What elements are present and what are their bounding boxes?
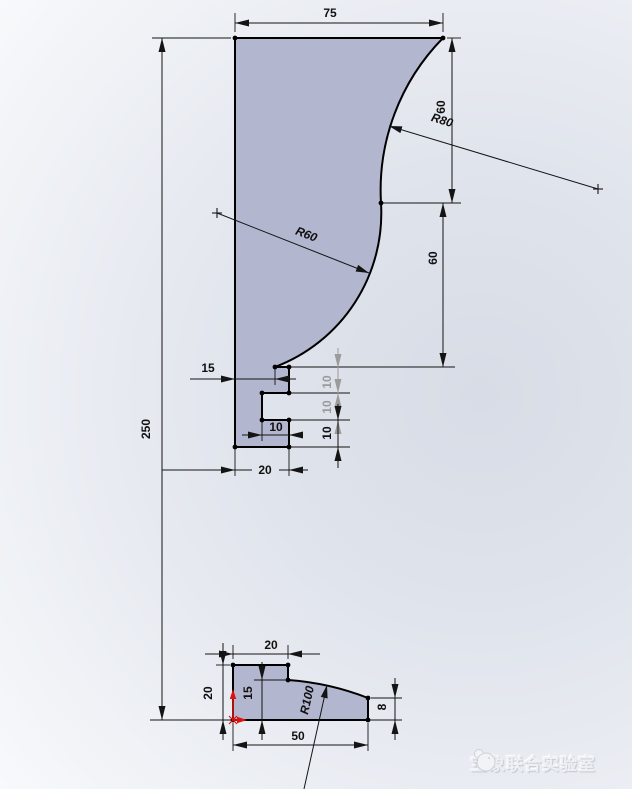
r80-center-point[interactable] — [593, 184, 603, 194]
dim-50-text[interactable]: 50 — [291, 729, 305, 743]
dim-r80[interactable]: R80 — [389, 110, 603, 194]
dim-250-text[interactable]: 250 — [139, 419, 153, 439]
dim-width-75[interactable]: 75 — [235, 6, 443, 32]
dim-75-text[interactable]: 75 — [323, 6, 337, 20]
dim-20-left-text[interactable]: 20 — [201, 686, 215, 700]
elephant-logo-icon — [470, 744, 498, 776]
dim-60-lower-text[interactable]: 60 — [426, 251, 440, 265]
dim-8-right-lower[interactable]: 8 — [370, 678, 402, 740]
dim-15-mid-text[interactable]: 15 — [241, 686, 255, 700]
watermark: 宝象联合实验室 — [470, 744, 630, 780]
sketch-canvas: 75 250 60 60 R80 — [0, 0, 632, 789]
dim-20-base[interactable]: 20 — [162, 449, 308, 477]
dim-10-step1-text[interactable]: 10 — [320, 375, 334, 389]
dim-10-step3-text[interactable]: 10 — [320, 426, 334, 440]
dim-50-base-lower[interactable]: 50 — [233, 723, 368, 751]
cad-viewport: 75 250 60 60 R80 — [0, 0, 632, 789]
r60-center-point[interactable] — [212, 208, 222, 218]
dim-8-text[interactable]: 8 — [375, 703, 389, 710]
dim-10-notch-text[interactable]: 10 — [269, 420, 283, 434]
dim-10-step2-text[interactable]: 10 — [320, 400, 334, 414]
dim-20-base-text[interactable]: 20 — [258, 463, 272, 477]
dim-20-left-lower[interactable]: 20 — [201, 643, 230, 740]
dim-15-text[interactable]: 15 — [201, 361, 215, 375]
dim-20-top-text[interactable]: 20 — [264, 638, 278, 652]
dim-r80-text[interactable]: R80 — [430, 110, 455, 130]
